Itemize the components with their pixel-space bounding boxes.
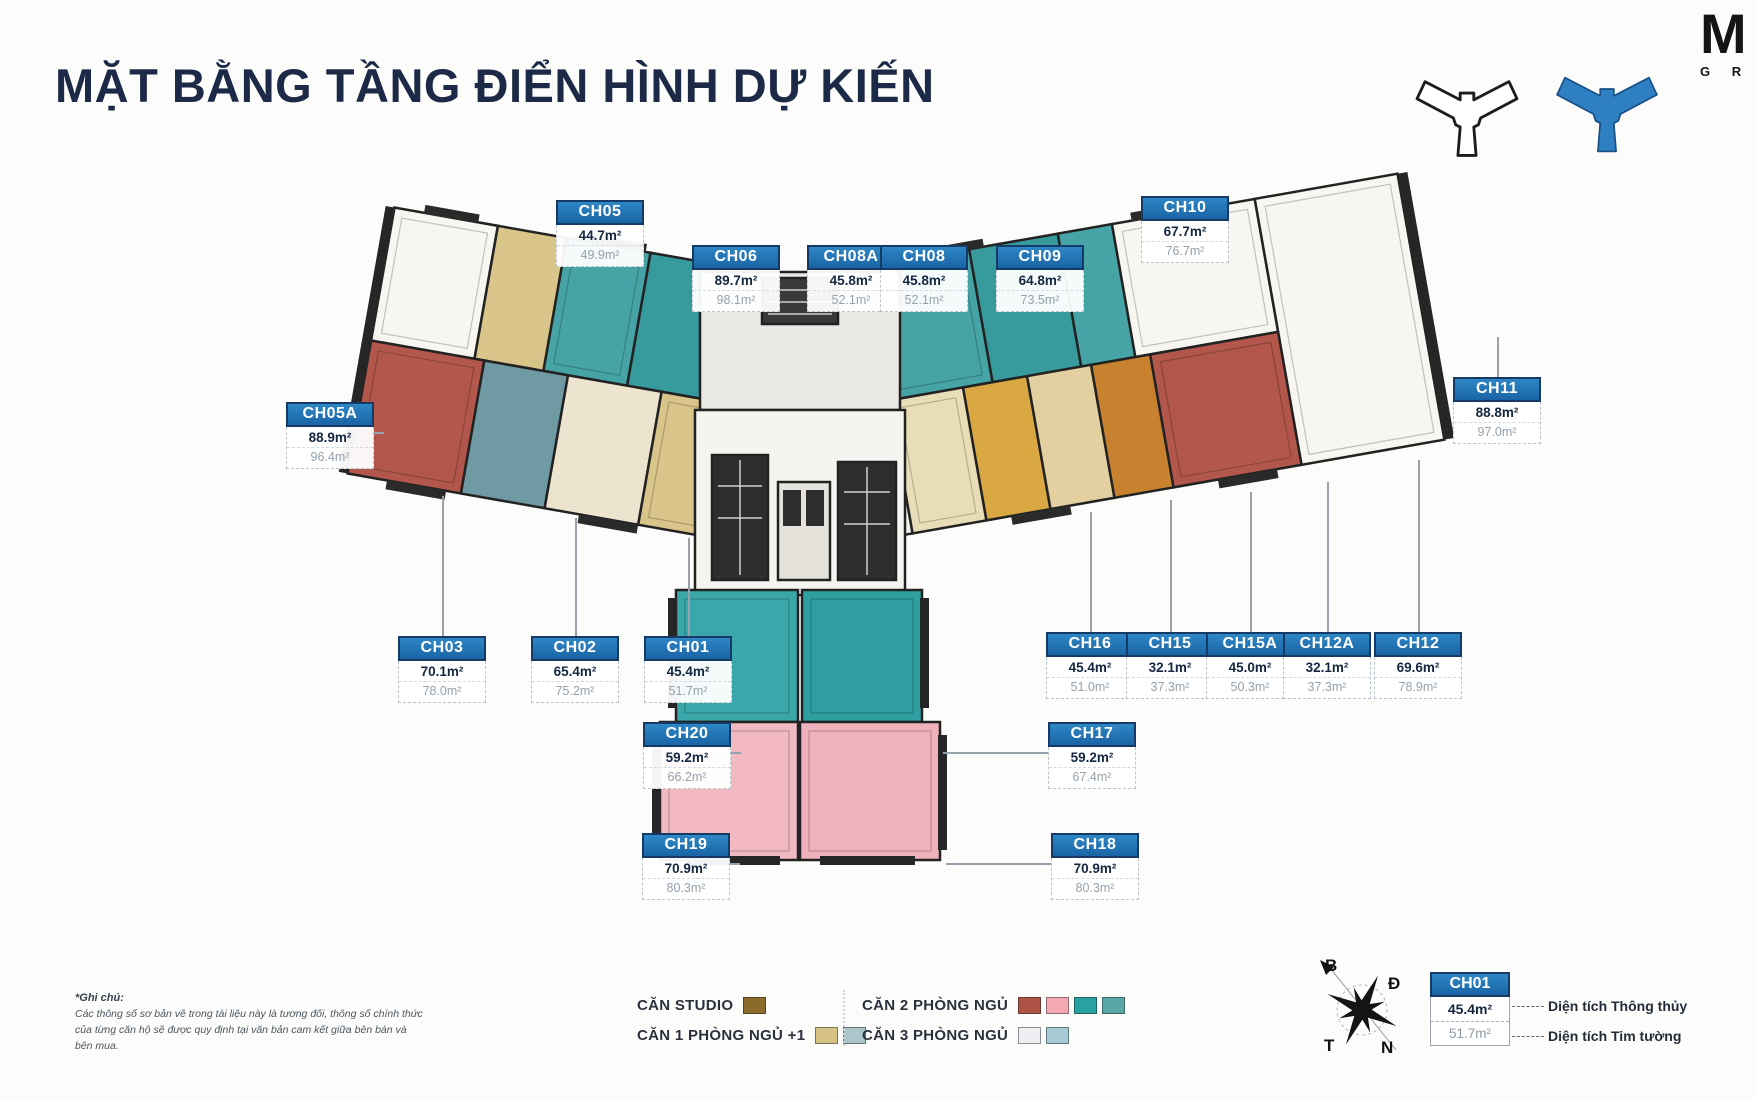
- unit-area-net: 88.8m²: [1454, 405, 1540, 420]
- legend-item-swatches: [743, 997, 771, 1014]
- unit-area-gross: 37.3m²: [1127, 677, 1213, 694]
- unit-callout: CH08 45.8m² 52.1m²: [880, 245, 968, 312]
- callout-leader-line: [731, 752, 741, 754]
- compass-west-label: T: [1324, 1036, 1334, 1056]
- unit-callout: CH05 44.7m² 49.9m²: [556, 200, 644, 267]
- unit-area-gross: 37.3m²: [1284, 677, 1370, 694]
- unit-callout: CH09 64.8m² 73.5m²: [996, 245, 1084, 312]
- legend-color-swatch: [1074, 997, 1097, 1014]
- legend-color-swatch: [1018, 997, 1041, 1014]
- unit-id-badge: CH15A: [1206, 632, 1294, 657]
- unit-areas: 69.6m² 78.9m²: [1374, 657, 1462, 699]
- unit-callout: CH15 32.1m² 37.3m²: [1126, 632, 1214, 699]
- unit-id-badge: CH06: [692, 245, 780, 270]
- unit-area-gross: 50.3m²: [1207, 677, 1293, 694]
- area-key-gross: 51.7m²: [1431, 1021, 1509, 1045]
- unit-area-gross: 51.0m²: [1047, 677, 1133, 694]
- unit-area-net: 69.6m²: [1375, 660, 1461, 675]
- unit-id-badge: CH17: [1048, 722, 1136, 747]
- unit-callout: CH10 67.7m² 76.7m²: [1141, 196, 1229, 263]
- legend-color-swatch: [815, 1027, 838, 1044]
- unit-id-badge: CH15: [1126, 632, 1214, 657]
- floor-plan-drawing: [0, 0, 1755, 1100]
- unit-area-gross: 51.7m²: [645, 681, 731, 698]
- legend-item-label: CĂN 3 PHÒNG NGỦ: [862, 1027, 1008, 1044]
- unit-area-gross: 98.1m²: [693, 290, 779, 307]
- unit-area-net: 70.1m²: [399, 664, 485, 679]
- unit-areas: 44.7m² 49.9m²: [556, 225, 644, 267]
- unit-id-badge: CH11: [1453, 377, 1541, 402]
- unit-area-net: 45.8m²: [881, 273, 967, 288]
- legend-item: CĂN STUDIO: [637, 990, 871, 1020]
- unit-callout: CH17 59.2m² 67.4m²: [1048, 722, 1136, 789]
- legend-color-swatch: [1102, 997, 1125, 1014]
- area-key-values: 45.4m² 51.7m²: [1430, 997, 1510, 1046]
- callout-leader-line: [374, 432, 384, 434]
- unit-area-gross: 49.9m²: [557, 245, 643, 262]
- unit-area-net: 65.4m²: [532, 664, 618, 679]
- legend-column-1: CĂN STUDIOCĂN 1 PHÒNG NGỦ +1: [637, 990, 871, 1050]
- area-key-unit-id: CH01: [1430, 972, 1510, 997]
- unit-id-badge: CH18: [1051, 833, 1139, 858]
- unit-id-badge: CH16: [1046, 632, 1134, 657]
- callout-leader-line: [943, 752, 1048, 754]
- legend-item: CĂN 3 PHÒNG NGỦ: [862, 1020, 1130, 1050]
- unit-areas: 64.8m² 73.5m²: [996, 270, 1084, 312]
- unit-area-net: 70.9m²: [643, 861, 729, 876]
- legend-item-label: CĂN STUDIO: [637, 997, 733, 1014]
- legend-item: CĂN 2 PHÒNG NGỦ: [862, 990, 1130, 1020]
- legend-color-swatch: [1046, 997, 1069, 1014]
- footnote: *Ghi chú: Các thông số sơ bản vẽ trong t…: [75, 992, 425, 1054]
- legend-divider: [843, 990, 845, 1046]
- compass-south-label: N: [1381, 1038, 1393, 1058]
- callout-leader-line: [688, 538, 690, 636]
- unit-callout: CH05A 88.9m² 96.4m²: [286, 402, 374, 469]
- unit-areas: 89.7m² 98.1m²: [692, 270, 780, 312]
- unit-id-badge: CH12: [1374, 632, 1462, 657]
- unit-area-net: 44.7m²: [557, 228, 643, 243]
- legend-item-label: CĂN 1 PHÒNG NGỦ +1: [637, 1027, 805, 1044]
- right-wing: [810, 164, 1456, 552]
- unit-area-gross: 96.4m²: [287, 447, 373, 464]
- callout-leader-line: [1250, 492, 1252, 632]
- unit-callout: CH19 70.9m² 80.3m²: [642, 833, 730, 900]
- unit-area-gross: 76.7m²: [1142, 241, 1228, 258]
- area-key-net-dash: [1512, 1006, 1544, 1007]
- unit-area-net: 89.7m²: [693, 273, 779, 288]
- unit-area-net: 45.4m²: [1047, 660, 1133, 675]
- unit-id-badge: CH19: [642, 833, 730, 858]
- unit-area-net: 32.1m²: [1284, 660, 1370, 675]
- unit-areas: 67.7m² 76.7m²: [1141, 221, 1229, 263]
- compass-north-label: B: [1325, 956, 1337, 976]
- unit-areas: 45.4m² 51.7m²: [644, 661, 732, 703]
- unit-area-gross: 80.3m²: [643, 878, 729, 895]
- unit-callout: CH16 45.4m² 51.0m²: [1046, 632, 1134, 699]
- unit-areas: 59.2m² 66.2m²: [643, 747, 731, 789]
- unit-area-net: 59.2m²: [644, 750, 730, 765]
- legend-item-swatches: [1018, 1027, 1074, 1044]
- unit-id-badge: CH12A: [1283, 632, 1371, 657]
- footnote-body: Các thông số sơ bản vẽ trong tài liệu nà…: [75, 1007, 425, 1054]
- unit-areas: 45.4m² 51.0m²: [1046, 657, 1134, 699]
- callout-leader-line: [1090, 512, 1092, 632]
- unit-callout: CH18 70.9m² 80.3m²: [1051, 833, 1139, 900]
- unit-id-badge: CH05A: [286, 402, 374, 427]
- unit-areas: 45.8m² 52.1m²: [880, 270, 968, 312]
- legend-color-swatch: [1046, 1027, 1069, 1044]
- area-key: CH01 45.4m² 51.7m²: [1430, 972, 1510, 1046]
- unit-area-net: 45.4m²: [645, 664, 731, 679]
- compass-rose: B Đ T N: [1312, 958, 1412, 1058]
- unit-callout: CH15A 45.0m² 50.3m²: [1206, 632, 1294, 699]
- unit-callout: CH06 89.7m² 98.1m²: [692, 245, 780, 312]
- unit-id-badge: CH10: [1141, 196, 1229, 221]
- unit-area-gross: 78.9m²: [1375, 677, 1461, 694]
- legend-color-swatch: [743, 997, 766, 1014]
- unit-id-badge: CH05: [556, 200, 644, 225]
- area-key-gross-label: Diện tích Tim tường: [1548, 1028, 1681, 1044]
- unit-id-badge: CH08: [880, 245, 968, 270]
- legend-column-2: CĂN 2 PHÒNG NGỦCĂN 3 PHÒNG NGỦ: [862, 990, 1130, 1050]
- legend-color-swatch: [1018, 1027, 1041, 1044]
- unit-callout: CH20 59.2m² 66.2m²: [643, 722, 731, 789]
- unit-callout: CH12A 32.1m² 37.3m²: [1283, 632, 1371, 699]
- callout-leader-line: [1497, 337, 1499, 377]
- unit-callout: CH03 70.1m² 78.0m²: [398, 636, 486, 703]
- area-key-gross-dash: [1512, 1036, 1544, 1037]
- unit-area-gross: 67.4m²: [1049, 767, 1135, 784]
- unit-areas: 70.9m² 80.3m²: [642, 858, 730, 900]
- unit-areas: 65.4m² 75.2m²: [531, 661, 619, 703]
- unit-areas: 45.0m² 50.3m²: [1206, 657, 1294, 699]
- unit-area-net: 70.9m²: [1052, 861, 1138, 876]
- unit-id-badge: CH03: [398, 636, 486, 661]
- unit-area-net: 45.0m²: [1207, 660, 1293, 675]
- unit-area-gross: 66.2m²: [644, 767, 730, 784]
- callout-leader-line: [946, 863, 1051, 865]
- unit-areas: 88.8m² 97.0m²: [1453, 402, 1541, 444]
- unit-area-gross: 73.5m²: [997, 290, 1083, 307]
- unit-areas: 32.1m² 37.3m²: [1126, 657, 1214, 699]
- unit-callout: CH02 65.4m² 75.2m²: [531, 636, 619, 703]
- unit-callout: CH01 45.4m² 51.7m²: [644, 636, 732, 703]
- compass-east-label: Đ: [1388, 974, 1400, 994]
- unit-area-gross: 52.1m²: [881, 290, 967, 307]
- callout-leader-line: [1418, 460, 1420, 632]
- unit-areas: 70.1m² 78.0m²: [398, 661, 486, 703]
- callout-leader-line: [730, 863, 740, 865]
- unit-callout: CH12 69.6m² 78.9m²: [1374, 632, 1462, 699]
- unit-areas: 88.9m² 96.4m²: [286, 427, 374, 469]
- unit-id-badge: CH09: [996, 245, 1084, 270]
- unit-area-net: 64.8m²: [997, 273, 1083, 288]
- callout-leader-line: [575, 518, 577, 636]
- unit-callout: CH11 88.8m² 97.0m²: [1453, 377, 1541, 444]
- unit-area-gross: 80.3m²: [1052, 878, 1138, 895]
- unit-areas: 70.9m² 80.3m²: [1051, 858, 1139, 900]
- unit-areas: 32.1m² 37.3m²: [1283, 657, 1371, 699]
- legend-item-swatches: [1018, 997, 1130, 1014]
- unit-area-net: 88.9m²: [287, 430, 373, 445]
- unit-area-net: 67.7m²: [1142, 224, 1228, 239]
- unit-id-badge: CH02: [531, 636, 619, 661]
- central-core: [695, 272, 905, 595]
- unit-area-net: 59.2m²: [1049, 750, 1135, 765]
- unit-area-gross: 97.0m²: [1454, 422, 1540, 439]
- unit-id-badge: CH20: [643, 722, 731, 747]
- area-key-net: 45.4m²: [1431, 997, 1509, 1021]
- footnote-heading: *Ghi chú:: [75, 992, 425, 1004]
- unit-area-gross: 78.0m²: [399, 681, 485, 698]
- unit-id-badge: CH01: [644, 636, 732, 661]
- unit-areas: 59.2m² 67.4m²: [1048, 747, 1136, 789]
- callout-leader-line: [1170, 500, 1172, 632]
- callout-leader-line: [1327, 482, 1329, 632]
- legend-item-label: CĂN 2 PHÒNG NGỦ: [862, 997, 1008, 1014]
- callout-leader-line: [442, 496, 444, 636]
- legend-item: CĂN 1 PHÒNG NGỦ +1: [637, 1020, 871, 1050]
- floorplan-page: MẶT BẰNG TẦNG ĐIỂN HÌNH DỰ KIẾN M G R: [0, 0, 1755, 1100]
- unit-area-gross: 75.2m²: [532, 681, 618, 698]
- area-key-net-label: Diện tích Thông thủy: [1548, 998, 1687, 1014]
- unit-area-net: 32.1m²: [1127, 660, 1213, 675]
